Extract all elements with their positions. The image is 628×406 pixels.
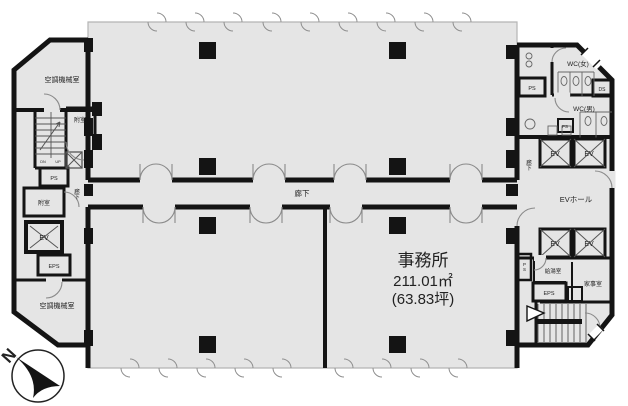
room-label-ev-hall: EVホール <box>560 195 593 204</box>
office-name: 事務所 <box>398 251 449 270</box>
room-label-ps-top-right: PS <box>528 86 536 92</box>
room-label-ac-top: 空調機械室 <box>45 75 80 84</box>
floor-plan-canvas: 空調機械室 附室 PS DN UP 附室 廊下 EV EPS 空調機械室 廊下 … <box>0 0 628 406</box>
room-label-kaji: 家事室 <box>584 280 602 288</box>
office-area-text: 事務所 211.01㎡ (63.83坪) <box>392 251 455 308</box>
room-label-anteroom-bottom: 附室 <box>38 199 50 207</box>
room-label-ev3: EV <box>550 241 560 248</box>
office-area-m2: 211.01㎡ <box>393 273 453 290</box>
floor-area <box>14 22 612 368</box>
floor-plan-page: 空調機械室 附室 PS DN UP 附室 廊下 EV EPS 空調機械室 廊下 … <box>0 0 628 406</box>
room-label-ds: DS <box>599 87 607 93</box>
north-compass: N <box>0 345 64 402</box>
room-label-eps-left: EPS <box>48 264 59 270</box>
room-label-eps-right: EPS <box>543 291 554 297</box>
room-label-ev2: EV <box>584 151 594 158</box>
stairs-up-label: UP <box>55 160 61 164</box>
room-label-kyuto: 給湯室 <box>545 267 562 275</box>
room-label-ev1: EV <box>550 151 560 158</box>
stairs-dn-label: DN <box>40 160 46 164</box>
room-label-ac-bottom: 空調機械室 <box>40 301 75 310</box>
corridor-label-right: 廊下 <box>525 158 532 172</box>
room-label-wc-men: WC(男) <box>573 105 595 113</box>
building-footprint <box>14 22 612 368</box>
room-label-ps-mid: PS <box>562 124 568 129</box>
corridor-label-left: 廊下 <box>73 187 80 201</box>
corridor-label-center: 廊下 <box>295 188 310 198</box>
office-area-tsubo: (63.83坪) <box>392 291 455 308</box>
room-label-wc-women: WC(女) <box>567 59 589 68</box>
room-label-anteroom-top: 附室 <box>74 116 86 124</box>
room-label-ps-vert: PS <box>522 262 527 272</box>
room-label-ps-left: PS <box>50 176 58 182</box>
room-label-ev-left: EV <box>39 235 49 242</box>
room-label-ev4: EV <box>584 241 594 248</box>
